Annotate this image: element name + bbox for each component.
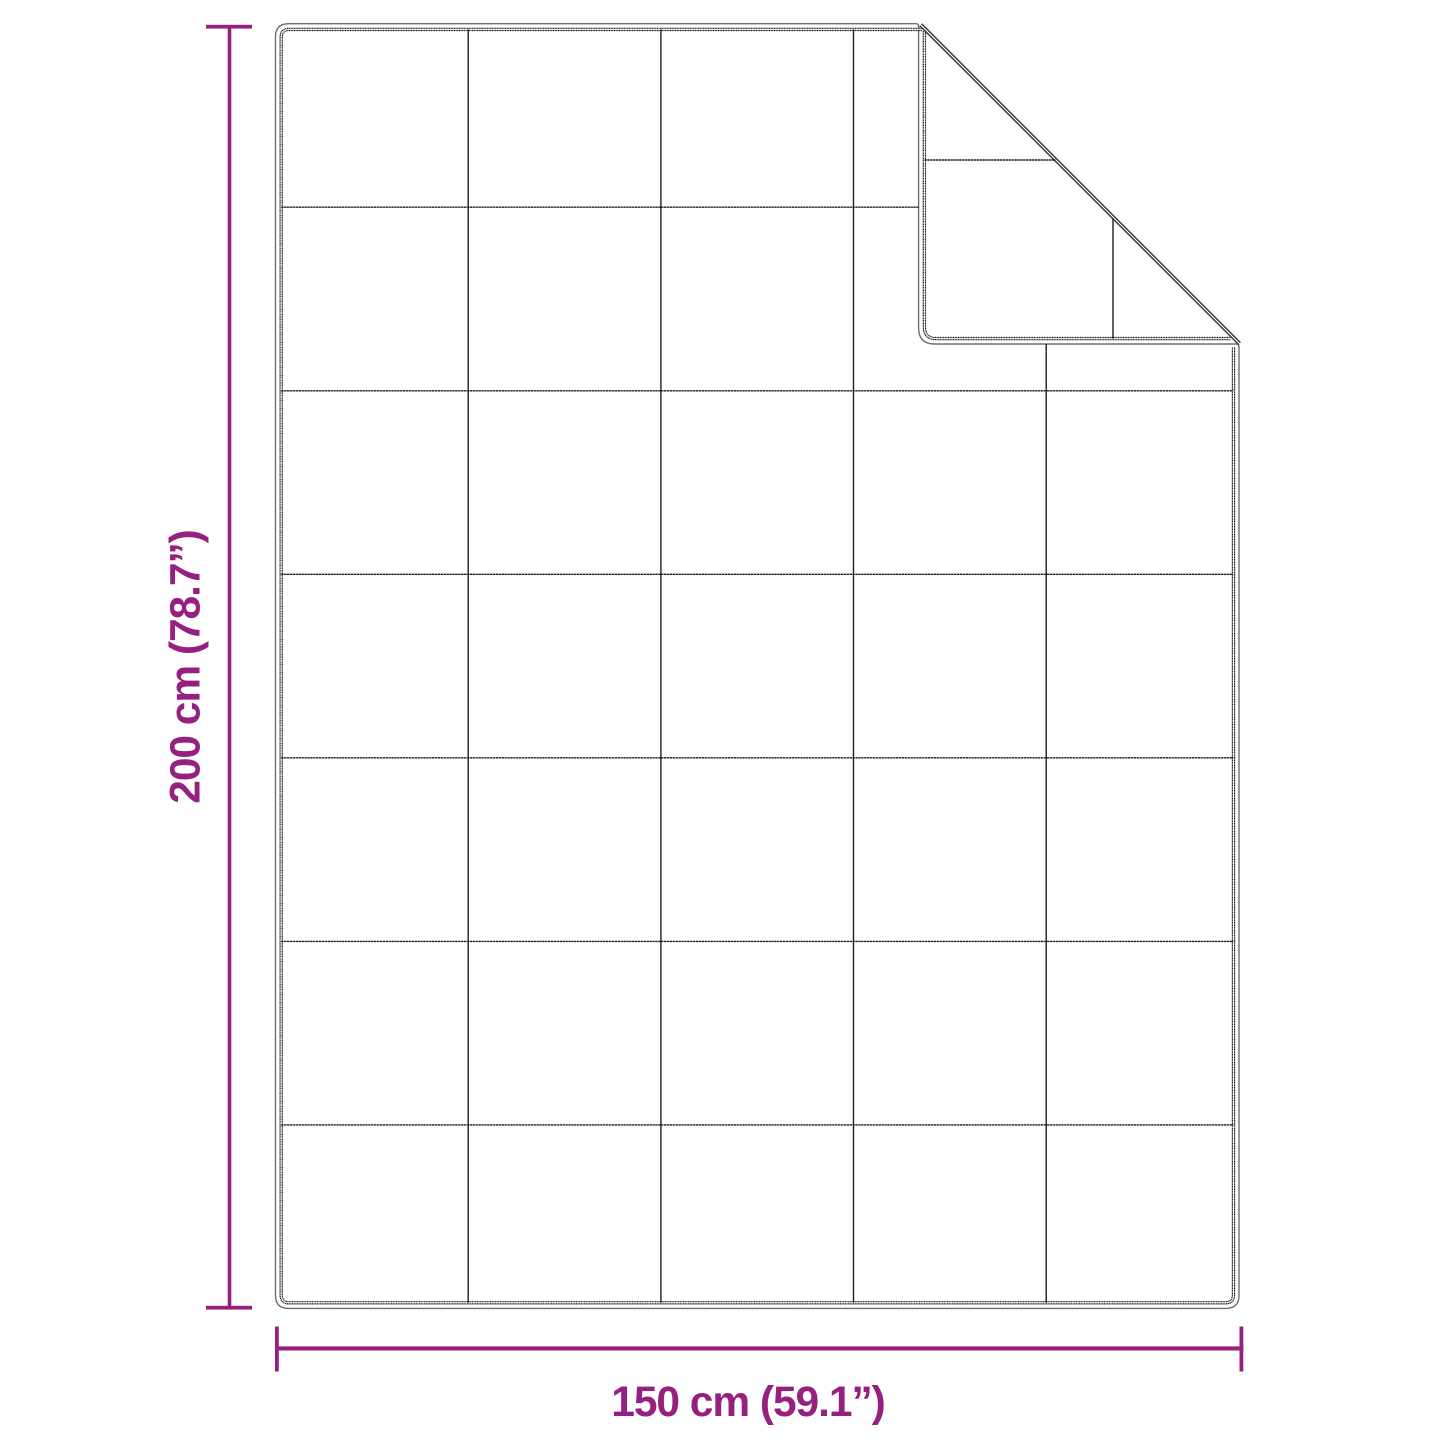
svg-text:150 cm (59.1”): 150 cm (59.1”) <box>611 1379 885 1426</box>
svg-text:200 cm (78.7”): 200 cm (78.7”) <box>163 530 210 804</box>
